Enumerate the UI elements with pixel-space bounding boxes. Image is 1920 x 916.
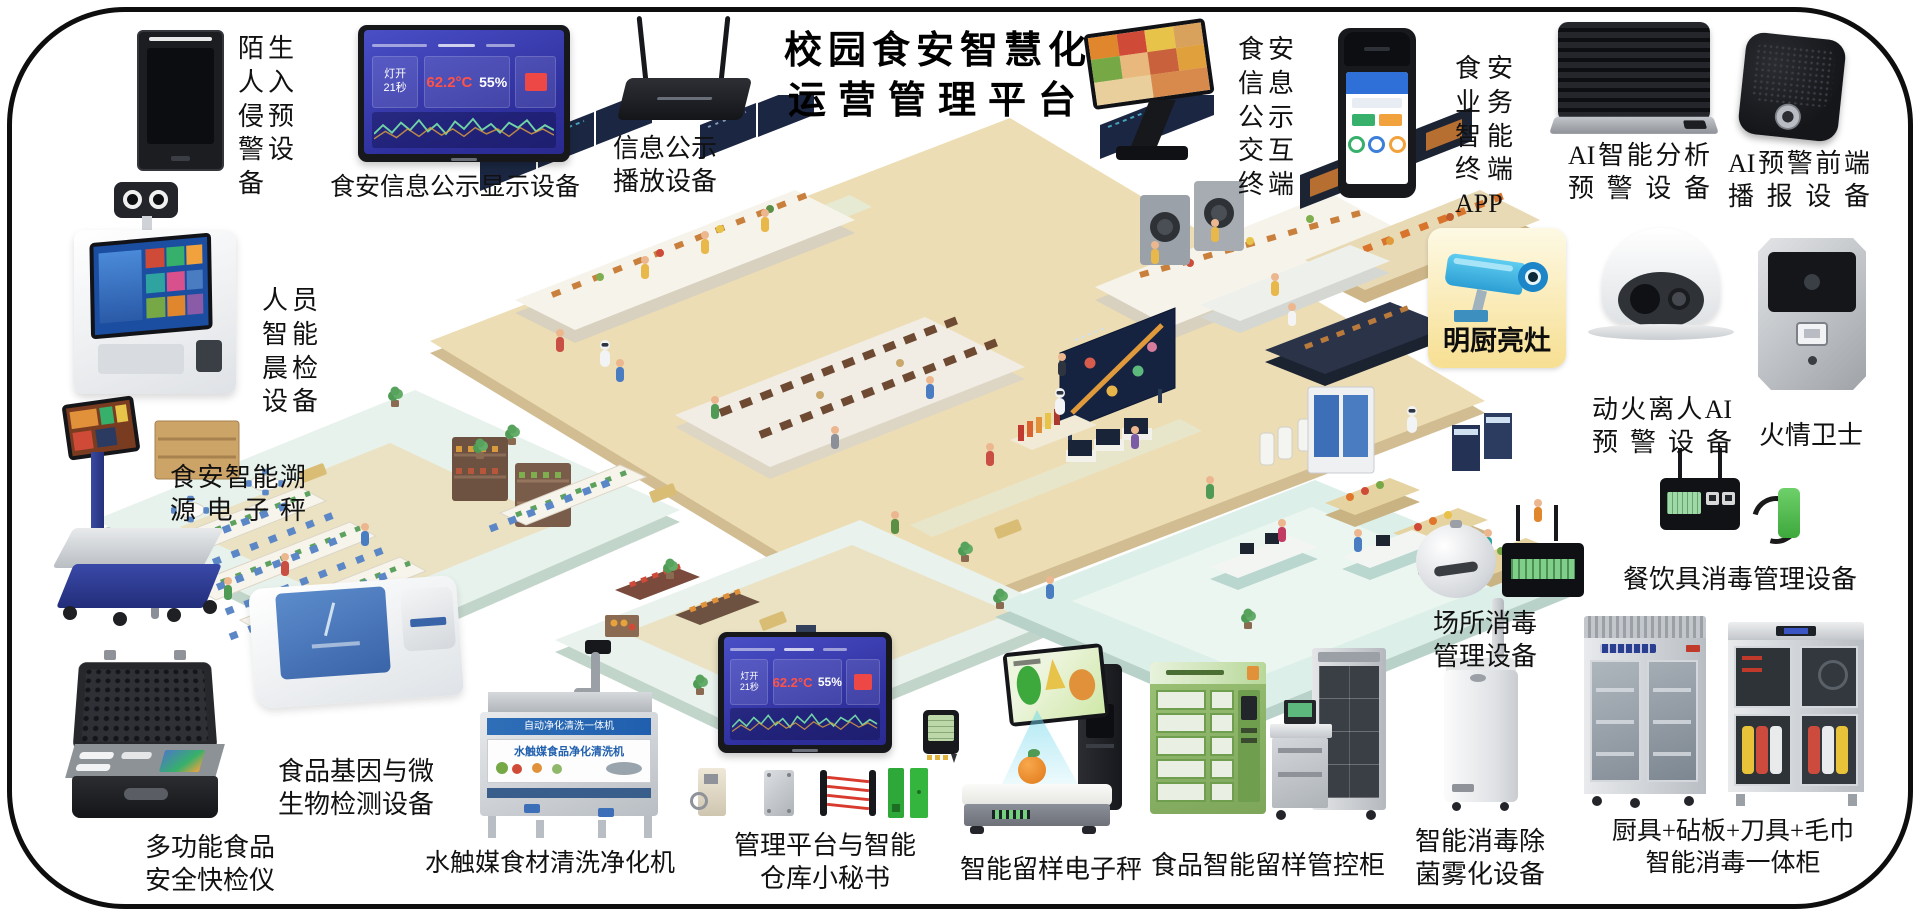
title-line2: 运营管理平台: [782, 76, 1094, 126]
lamp-status: 灯开: [740, 671, 758, 682]
badge-label: 明厨亮灶: [1428, 319, 1566, 358]
label-ai-analysis: AI智能分析预警设备: [1568, 140, 1710, 206]
dual-lens-camera-icon: [114, 182, 178, 218]
venue-ball-sensor: [1416, 520, 1496, 598]
label-trace-scale: 食安智能溯源电子秤: [170, 462, 306, 528]
pos-screen: [1346, 72, 1408, 184]
sample-cabinet-green: [1150, 662, 1266, 814]
broadcast-router-device: [622, 16, 747, 128]
light-curtain-icon: [820, 770, 876, 816]
label-stranger-alarm: 陌生人入侵预警设备: [238, 32, 294, 201]
antenna-icon: [1516, 505, 1520, 541]
label-kiosk: 食安信息公示交互终端: [1238, 33, 1294, 202]
usb-port-icon: [1796, 322, 1828, 346]
optical-lens-icon: [1668, 288, 1690, 310]
trend-chart: [730, 708, 879, 740]
camera-slit-icon: [149, 37, 212, 41]
speaker-button-icon: [1774, 102, 1803, 131]
pcb-board-icon: [910, 768, 928, 818]
label-tableware: 餐饮具消毒管理设备: [1622, 564, 1858, 597]
lamp-seconds: 21秒: [383, 82, 406, 96]
dashboard-screen: 灯开21秒 62.2°C55%: [364, 30, 564, 154]
label-ai-speaker: AI预警前端播报设备: [1728, 148, 1870, 214]
label-gene-test: 食品基因与微生物检测设备: [276, 756, 436, 822]
label-mgmt-platform: 管理平台与智能仓库小秘书: [732, 830, 918, 896]
poster-canvas: 陌生人入侵预警设备 灯开21秒 62.2°C55% 食安信息公示显示设备 信息公…: [0, 0, 1920, 916]
gene-detector-device: [252, 574, 460, 716]
label-quick-test: 多功能食品安全快检仪: [142, 832, 278, 898]
pump-device-icon: [698, 768, 726, 816]
sensor-gadget-row: [688, 762, 928, 824]
dashboard-screen: 灯开21秒 62.2°C55%: [724, 637, 886, 745]
info-display-monitor: 灯开21秒 62.2°C55%: [358, 25, 570, 162]
label-broadcast: 信息公示播放设备: [610, 133, 720, 199]
pcb-board-icon: [888, 768, 904, 818]
humidity-value: 55%: [479, 74, 507, 90]
green-tag-icon: [1778, 488, 1800, 538]
dome-camera-device: [1588, 228, 1734, 344]
page-title: 校园食安智慧化 运营管理平台: [782, 26, 1094, 126]
temperature-value: 62.2°C: [773, 675, 813, 690]
label-pos-app: 食安业务智能终端APP: [1455, 52, 1513, 221]
humidity-value: 55%: [818, 675, 842, 689]
kitchen-cabinet-glass: [1584, 616, 1706, 806]
morning-check-device: [70, 182, 240, 394]
kitchen-cabinet-boards: [1728, 622, 1864, 804]
label-fire-guard: 火情卫士: [1752, 420, 1870, 453]
ai-analysis-device: [1558, 22, 1710, 122]
ai-speaker-device: [1737, 31, 1847, 143]
stranger-alarm-device: [137, 30, 224, 171]
sample-cabinet-steel: [1270, 648, 1388, 818]
interactive-kiosk-device: [1088, 26, 1216, 166]
antenna-icon: [719, 16, 731, 82]
label-fog-device: 智能消毒除菌雾化设备: [1412, 826, 1548, 892]
wash-banner-main: 水触媒食品净化清洗机: [488, 743, 650, 759]
thermal-lens-icon: [1630, 284, 1660, 314]
label-sample-cabinet: 食品智能留样管控柜: [1150, 850, 1386, 883]
alert-badge: [525, 73, 547, 91]
quick-test-case-device: [70, 658, 220, 818]
alert-badge: [854, 674, 872, 690]
pos-terminal-device: [1338, 28, 1416, 198]
lamp-seconds: 21秒: [740, 682, 759, 693]
wash-banner-top: 自动净化清洗一体机: [487, 718, 651, 735]
sample-scale-device: [962, 648, 1132, 834]
title-line1: 校园食安智慧化: [782, 26, 1094, 76]
label-kitchen-cabinet: 厨具+砧板+刀具+毛巾智能消毒一体柜: [1608, 816, 1858, 879]
label-sample-scale: 智能留样电子秤: [958, 854, 1144, 887]
orange-fruit-icon: [1018, 756, 1046, 784]
tableware-disinfect-device: [1660, 448, 1820, 548]
trend-chart: [372, 112, 556, 148]
camera-lens-icon: [1804, 274, 1820, 290]
label-fire-ai: 动火离人AI预警设备: [1592, 394, 1732, 460]
antenna-icon: [1554, 505, 1558, 541]
label-morning-check: 人员智能晨检设备: [262, 284, 318, 419]
lamp-status: 灯开: [384, 68, 406, 82]
label-info-display: 食安信息公示显示设备: [330, 172, 580, 204]
venue-router: [1502, 505, 1584, 599]
bright-kitchen-badge: 明厨亮灶: [1428, 228, 1566, 368]
fire-guardian-device: [1758, 238, 1866, 390]
antenna-icon: [637, 16, 649, 82]
wash-machine-device: 自动净化清洗一体机 水触媒食品净化清洗机: [478, 636, 660, 838]
label-venue-disinfect: 场所消毒管理设备: [1430, 608, 1540, 674]
label-wash-machine: 水触媒食材清洗净化机: [424, 848, 676, 880]
plate-exchanger-icon: [764, 770, 794, 816]
iot-sensor-device: [923, 710, 959, 754]
mgmt-platform-monitor: 灯开21秒 62.2°C55%: [718, 632, 892, 753]
temperature-value: 62.2°C: [426, 74, 472, 91]
